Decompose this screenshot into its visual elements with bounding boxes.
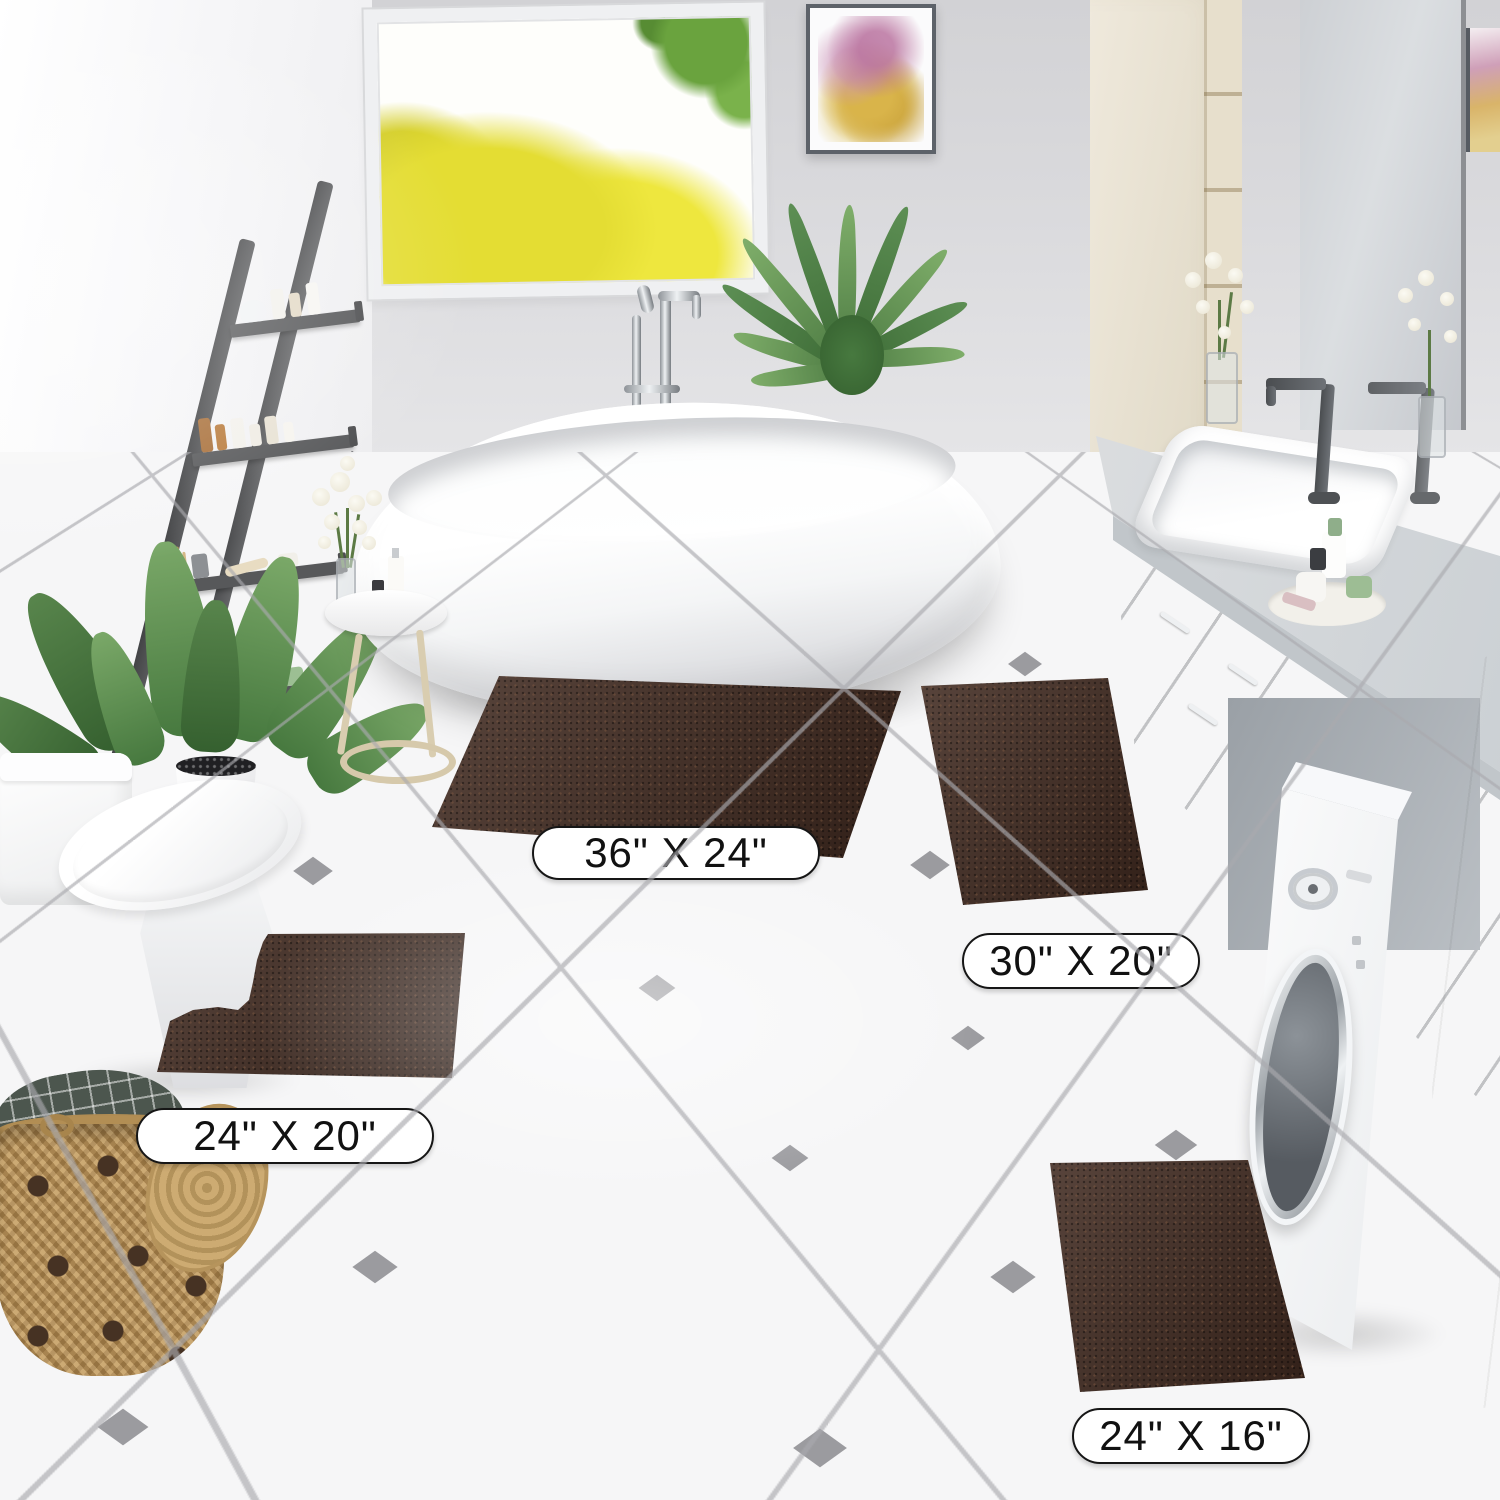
bottle (264, 415, 279, 444)
jar (239, 299, 267, 324)
washer-button (1352, 936, 1361, 945)
flower (330, 472, 350, 492)
washer-dial (1288, 868, 1338, 910)
bottle (230, 417, 247, 448)
flower (340, 456, 355, 471)
flower (1440, 292, 1454, 306)
flower (312, 488, 330, 506)
size-label-runner: 30" X 20" (962, 933, 1200, 989)
size-label-small-text: 24" X 16" (1099, 1412, 1283, 1460)
flower (1205, 252, 1222, 269)
size-label-contour-text: 24" X 20" (193, 1112, 377, 1160)
flower (348, 495, 365, 512)
flower (324, 514, 340, 530)
faucet-crossbar (624, 385, 680, 393)
faucet-outlet (1266, 386, 1276, 406)
bottle (305, 282, 321, 315)
bottle (283, 421, 295, 442)
wall-art-print (818, 16, 924, 142)
bathroom-scene: 36" X 24" 30" X 20" 24" X 20" 24" X 16" (0, 0, 1500, 1500)
flower (1185, 272, 1201, 288)
flower (362, 536, 376, 550)
amber-bottle (214, 424, 227, 451)
faucet-base (1308, 492, 1340, 504)
table-leg (416, 630, 436, 758)
flower-stem (1428, 330, 1431, 396)
flower (352, 520, 367, 535)
bottle (270, 288, 287, 319)
flower (1418, 270, 1434, 286)
size-label-large: 36" X 24" (532, 826, 820, 880)
flower (1398, 288, 1413, 303)
table-top (325, 590, 447, 636)
hand-shower (636, 284, 655, 314)
flower (1218, 326, 1231, 339)
wall-art (806, 4, 936, 154)
flower (1196, 300, 1210, 314)
window (363, 3, 768, 300)
flower (366, 490, 382, 506)
washer-button (1356, 960, 1365, 969)
flower-vase (1418, 396, 1446, 458)
dark-item (1310, 548, 1326, 570)
flower (1228, 268, 1243, 283)
flower (1408, 318, 1421, 331)
size-label-runner-text: 30" X 20" (989, 937, 1173, 985)
size-label-small: 24" X 16" (1072, 1408, 1310, 1464)
faucet-arm (1368, 382, 1426, 394)
flower (318, 536, 331, 549)
table-ring-base (340, 740, 456, 784)
green-jar (1346, 576, 1372, 598)
size-label-large-text: 36" X 24" (584, 829, 768, 877)
flower (1444, 330, 1457, 343)
pump-top (392, 548, 399, 558)
flower-vase (1206, 352, 1238, 424)
wall-art-right (1466, 28, 1500, 152)
faucet-base (1410, 492, 1440, 504)
pump-cap (1328, 518, 1342, 536)
table-leg (337, 633, 363, 755)
size-label-contour: 24" X 20" (136, 1108, 434, 1164)
mirror (1300, 0, 1466, 430)
flower (1240, 300, 1254, 314)
faucet-spout-tip (692, 295, 701, 319)
basket-handle (40, 1114, 74, 1138)
